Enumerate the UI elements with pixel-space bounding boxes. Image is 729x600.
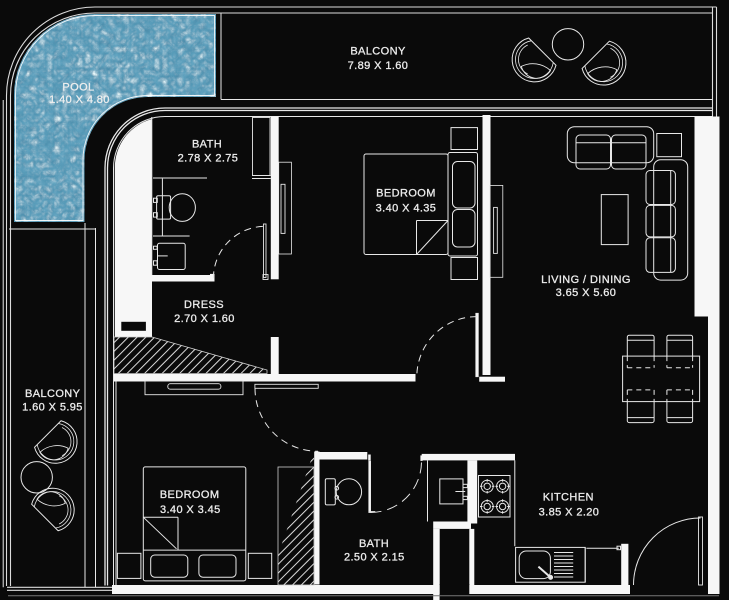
svg-text:DRESS: DRESS: [184, 299, 224, 311]
svg-text:7.89 X 1.60: 7.89 X 1.60: [348, 60, 409, 72]
svg-text:3.85 X 2.20: 3.85 X 2.20: [539, 507, 600, 519]
svg-text:BALCONY: BALCONY: [350, 46, 406, 58]
svg-text:3.40 X 3.45: 3.40 X 3.45: [160, 504, 221, 516]
svg-text:3.40 X 4.35: 3.40 X 4.35: [376, 203, 437, 215]
svg-text:POOL: POOL: [62, 82, 94, 94]
svg-text:BEDROOM: BEDROOM: [160, 489, 220, 501]
svg-text:2.78 X 2.75: 2.78 X 2.75: [178, 153, 239, 165]
svg-text:2.70 X 1.60: 2.70 X 1.60: [174, 313, 235, 325]
svg-text:BATH: BATH: [359, 538, 389, 550]
svg-text:1.60 X 5.95: 1.60 X 5.95: [22, 402, 83, 414]
svg-text:2.50 X 2.15: 2.50 X 2.15: [344, 552, 405, 564]
svg-text:BALCONY: BALCONY: [25, 388, 81, 400]
svg-text:3.65 X 5.60: 3.65 X 5.60: [556, 287, 617, 299]
svg-text:LIVING / DINING: LIVING / DINING: [541, 274, 631, 286]
svg-text:KITCHEN: KITCHEN: [543, 492, 594, 504]
svg-text:1.40 X 4.80: 1.40 X 4.80: [49, 94, 110, 106]
svg-text:BEDROOM: BEDROOM: [376, 188, 436, 200]
svg-text:BATH: BATH: [192, 139, 222, 151]
